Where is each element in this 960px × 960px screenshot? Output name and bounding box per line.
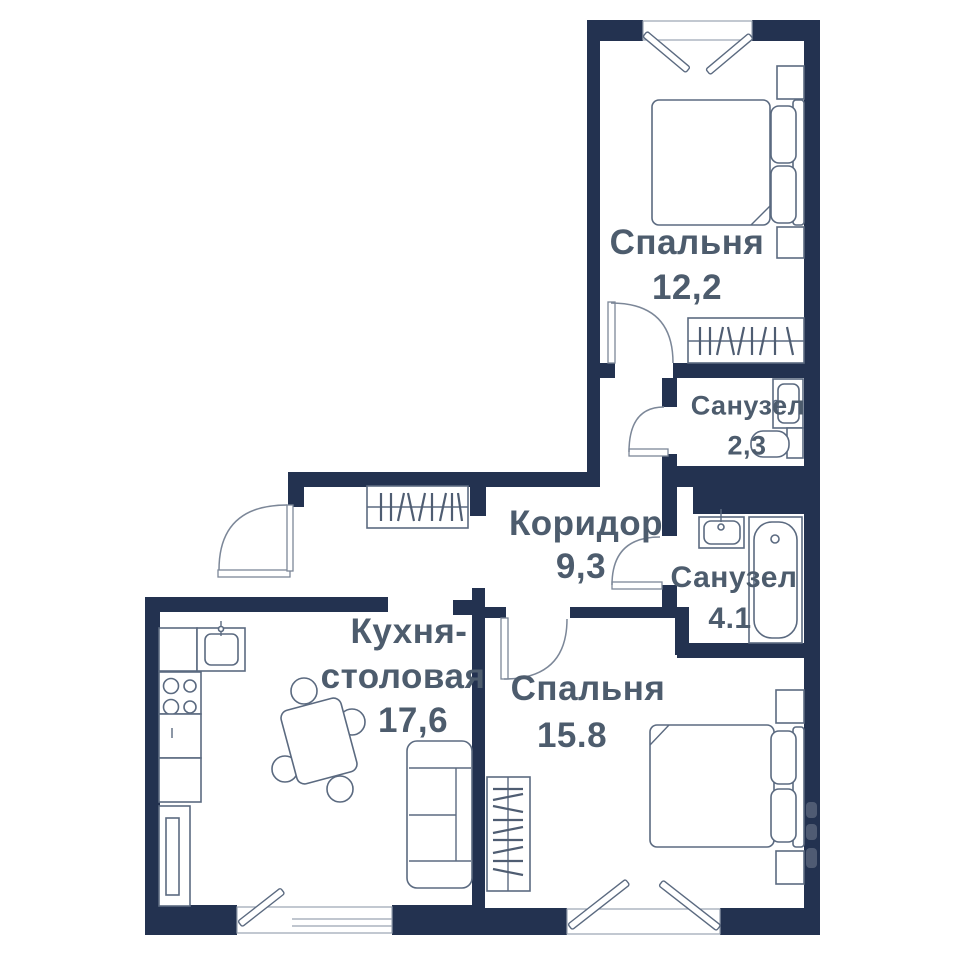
room-label-kitchen-name-line2: столовая bbox=[321, 657, 486, 697]
room-label-bedroom-1-name: Спальня bbox=[610, 223, 765, 263]
room-label-kitchen-name-line1: Кухня- bbox=[351, 612, 468, 652]
kitchen-cabinets bbox=[159, 714, 201, 802]
floor-plan-drawing bbox=[0, 0, 960, 960]
entry-door bbox=[218, 505, 293, 577]
kitchen-counter bbox=[159, 628, 197, 671]
room-label-bedroom-2-name: Спальня bbox=[511, 669, 666, 709]
room-label-bathroom-2-name: Санузел bbox=[671, 561, 798, 595]
sofa-icon bbox=[407, 741, 472, 888]
door-bathroom-2 bbox=[612, 537, 662, 589]
wardrobe-icon-bedroom-2 bbox=[487, 777, 530, 891]
room-label-corridor-area: 9,3 bbox=[556, 547, 606, 587]
room-label-bedroom-1-area: 12,2 bbox=[652, 268, 722, 308]
room-label-bathroom-1-name: Санузел bbox=[691, 391, 806, 422]
sink-icon-bathroom-2 bbox=[699, 509, 744, 548]
bed-icon-bedroom-2 bbox=[650, 690, 804, 884]
room-label-bathroom-1-area: 2,3 bbox=[727, 431, 766, 462]
room-label-corridor-name: Коридор bbox=[509, 504, 663, 544]
window-bedroom-1 bbox=[643, 21, 753, 75]
room-label-bathroom-2-area: 4.1 bbox=[708, 602, 751, 636]
door-bathroom-1 bbox=[629, 407, 668, 456]
door-bedroom-1 bbox=[608, 302, 673, 363]
floor-plan: Спальня 12,2 Санузел 2,3 Коридор 9,3 Сан… bbox=[0, 0, 960, 960]
watermark bbox=[806, 802, 817, 868]
wardrobe-icon-bedroom-1 bbox=[688, 318, 804, 363]
window-kitchen bbox=[237, 888, 392, 933]
kitchen-sink-icon bbox=[197, 621, 245, 671]
wardrobe-icon-corridor bbox=[367, 486, 468, 528]
stove-icon bbox=[159, 672, 201, 715]
room-label-bedroom-2-area: 15.8 bbox=[537, 716, 607, 756]
room-label-kitchen-area: 17,6 bbox=[378, 701, 448, 741]
window-bedroom-2 bbox=[567, 879, 721, 934]
